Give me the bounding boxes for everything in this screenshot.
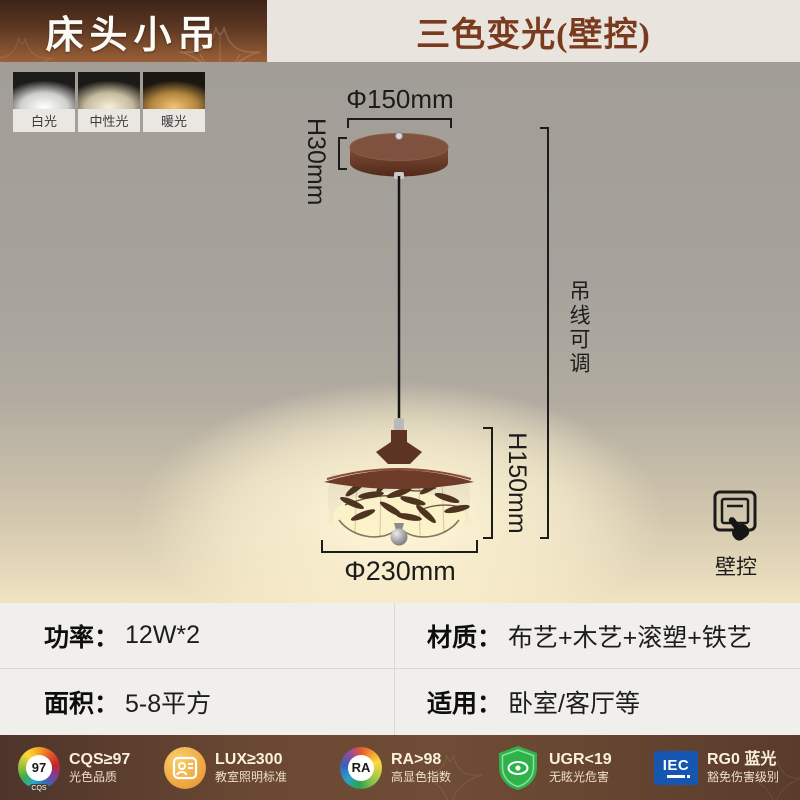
cqs-value: 97: [26, 755, 52, 781]
cert-line1: UGR<19: [549, 750, 612, 770]
cert-iec: IEC RG0 蓝光 豁免伤害级别: [654, 735, 779, 800]
spec-value: 卧室/客厅等: [508, 684, 640, 720]
spec-label: 功率：: [44, 618, 119, 654]
spec-power: 功率： 12W*2: [0, 603, 395, 669]
light-mode-swatches: 白光 中性光 暖光: [13, 72, 205, 132]
wall-control-label: 壁控: [702, 551, 770, 581]
cert-lux: LUX≥300 教室照明标准: [164, 735, 287, 800]
ra-color-wheel-icon: RA: [340, 747, 382, 789]
spec-value: 5-8平方: [125, 684, 211, 720]
person-board-glyph: [172, 755, 198, 781]
iec-text: IEC: [663, 758, 690, 773]
canopy-diameter-bracket: [348, 119, 451, 128]
spec-label: 材质：: [427, 618, 502, 654]
spec-table: 功率： 12W*2 材质： 布艺+木艺+滚塑+铁艺 面积： 5-8平方 适用： …: [0, 603, 800, 735]
white-light-preview: [13, 72, 75, 109]
cert-line2: 光色品质: [69, 770, 130, 785]
cert-line2: 豁免伤害级别: [707, 770, 779, 785]
cert-ra: RA RA>98 高显色指数: [340, 735, 451, 800]
swatch-label: 白光: [13, 109, 75, 132]
cert-cqs: 97 CQS CQS≥97 光色品质: [18, 735, 130, 800]
spec-value: 12W*2: [125, 621, 200, 650]
product-name-badge: 床头小吊: [0, 0, 267, 62]
swatch-warm-light: 暖光: [143, 72, 205, 132]
header-banner: 三色变光(壁控): [267, 0, 800, 62]
swatch-label: 暖光: [143, 109, 205, 132]
warm-light-preview: [143, 72, 205, 109]
pendant-lamp-illustration: [0, 62, 800, 603]
canopy-diameter-label: Φ150mm: [320, 84, 480, 115]
swatch-neutral-light: 中性光: [78, 72, 140, 132]
product-name: 床头小吊: [45, 4, 221, 59]
swatch-white-light: 白光: [13, 72, 75, 132]
wire-adjustable-label: 吊线可调: [563, 280, 593, 376]
spec-usage: 适用： 卧室/客厅等: [395, 669, 800, 735]
canopy-height-label: H30mm: [306, 118, 330, 196]
ceiling-canopy: [350, 133, 448, 180]
spec-material: 材质： 布艺+木艺+滚塑+铁艺: [395, 603, 800, 669]
iec-logo-icon: IEC: [654, 751, 698, 785]
canopy-screw: [396, 133, 403, 140]
cert-line1: LUX≥300: [215, 750, 287, 770]
shade-height-label: H150mm: [507, 428, 531, 538]
cert-ugr: UGR<19 无眩光危害: [496, 735, 612, 800]
ugr-shield-eye-icon: [496, 744, 540, 792]
swatch-label: 中性光: [78, 109, 140, 132]
cert-line2: 高显色指数: [391, 770, 451, 785]
spec-label: 适用：: [427, 684, 502, 720]
feature-title: 三色变光(壁控): [416, 7, 651, 56]
wall-control: 壁控: [702, 490, 770, 581]
lamp-scene: 白光 中性光 暖光 Φ150mm H30mm 吊线可调 H150mm Φ230m…: [0, 62, 800, 603]
cqs-tag: CQS: [28, 784, 49, 793]
certification-bar: 97 CQS CQS≥97 光色品质 LUX≥300 教室照明标准: [0, 735, 800, 800]
iec-underline: [667, 775, 685, 778]
spec-area: 面积： 5-8平方: [0, 669, 395, 735]
wall-switch-icon: [711, 490, 761, 544]
cert-line2: 教室照明标准: [215, 770, 287, 785]
classroom-person-icon: [164, 747, 206, 789]
shade-diameter-label: Φ230mm: [320, 556, 480, 587]
cert-line1: RA>98: [391, 750, 451, 770]
neutral-light-preview: [78, 72, 140, 109]
cert-line1: CQS≥97: [69, 750, 130, 770]
cqs-starburst-icon: 97 CQS: [18, 747, 60, 789]
product-infographic: 床头小吊 三色变光(壁控): [0, 0, 800, 800]
ra-value: RA: [348, 755, 374, 781]
spec-value: 布艺+木艺+滚塑+铁艺: [508, 618, 752, 654]
cert-line2: 无眩光危害: [549, 770, 612, 785]
canopy-height-bracket: [339, 138, 347, 169]
cert-line1: RG0 蓝光: [707, 750, 779, 770]
spec-label: 面积：: [44, 684, 119, 720]
